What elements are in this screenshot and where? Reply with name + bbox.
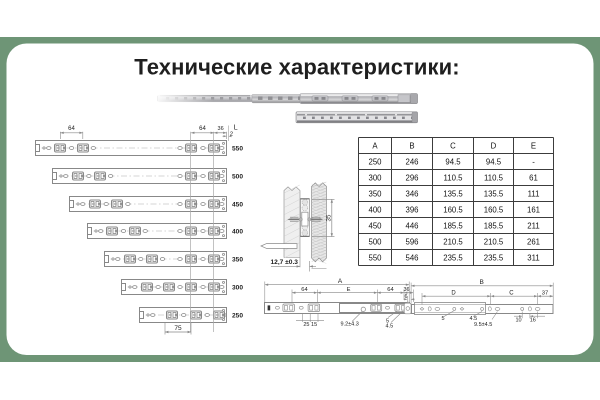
svg-text:16: 16 — [530, 318, 536, 324]
svg-text:261: 261 — [527, 237, 540, 246]
svg-text:396: 396 — [405, 205, 418, 214]
svg-text:110.5: 110.5 — [444, 173, 464, 182]
svg-text:135.5: 135.5 — [443, 189, 463, 198]
svg-text:135.5: 135.5 — [484, 189, 504, 198]
svg-text:111: 111 — [528, 189, 540, 198]
svg-text:596: 596 — [405, 237, 418, 246]
svg-text:61: 61 — [529, 173, 538, 182]
svg-text:Технические характеристики:: Технические характеристики: — [134, 54, 459, 79]
svg-text:35: 35 — [325, 214, 332, 221]
svg-text:400: 400 — [368, 205, 382, 214]
svg-text:64: 64 — [199, 126, 206, 132]
svg-text:36: 36 — [403, 287, 409, 293]
svg-text:500: 500 — [232, 173, 243, 180]
svg-text:110.5: 110.5 — [484, 173, 504, 182]
svg-text:446: 446 — [405, 221, 418, 230]
svg-text:94.5: 94.5 — [486, 157, 502, 166]
svg-text:246: 246 — [405, 157, 418, 166]
svg-text:10: 10 — [515, 318, 521, 324]
svg-text:185.5: 185.5 — [443, 221, 463, 230]
svg-text:185.5: 185.5 — [484, 221, 504, 230]
svg-text:D: D — [451, 291, 456, 297]
svg-text:450: 450 — [368, 221, 382, 230]
svg-text:300: 300 — [368, 173, 382, 182]
svg-text:235.5: 235.5 — [484, 253, 504, 262]
svg-text:500: 500 — [368, 237, 382, 246]
svg-text:296: 296 — [405, 173, 418, 182]
svg-text:5: 5 — [442, 316, 445, 322]
svg-text:75: 75 — [174, 325, 182, 332]
svg-text:6: 6 — [405, 294, 408, 300]
svg-text:4.5: 4.5 — [386, 324, 394, 330]
svg-text:211: 211 — [527, 221, 539, 230]
svg-text:300: 300 — [232, 284, 243, 291]
svg-text:C: C — [509, 291, 514, 297]
svg-text:210.5: 210.5 — [484, 237, 504, 246]
svg-text:550: 550 — [232, 145, 243, 152]
svg-text:9.2±4.3: 9.2±4.3 — [341, 322, 359, 328]
svg-text:546: 546 — [405, 253, 418, 262]
svg-text:B: B — [409, 141, 414, 150]
svg-text:9.5±4.5: 9.5±4.5 — [474, 322, 492, 328]
svg-text:64: 64 — [387, 287, 394, 293]
svg-text:235.5: 235.5 — [443, 253, 463, 262]
svg-text:350: 350 — [232, 256, 243, 263]
svg-text:12,7 ±0.3: 12,7 ±0.3 — [271, 259, 299, 266]
svg-text:250: 250 — [232, 312, 243, 319]
svg-text:A: A — [372, 141, 378, 150]
svg-text:15: 15 — [311, 322, 317, 328]
svg-text:550: 550 — [368, 253, 382, 262]
svg-text:B: B — [480, 279, 484, 286]
svg-text:400: 400 — [232, 228, 243, 235]
svg-text:250: 250 — [368, 157, 382, 166]
svg-text:311: 311 — [527, 253, 539, 262]
svg-text:210.5: 210.5 — [443, 237, 463, 246]
svg-text:64: 64 — [301, 287, 308, 293]
svg-text:346: 346 — [405, 189, 418, 198]
svg-text:-: - — [532, 157, 535, 166]
svg-text:25: 25 — [303, 322, 309, 328]
svg-text:E: E — [531, 141, 536, 150]
svg-text:36: 36 — [218, 126, 224, 132]
svg-text:A: A — [338, 278, 343, 285]
svg-text:161: 161 — [527, 205, 540, 214]
svg-text:37: 37 — [542, 291, 548, 297]
svg-text:E: E — [347, 287, 351, 293]
svg-text:D: D — [491, 141, 497, 150]
svg-text:64: 64 — [68, 126, 75, 132]
svg-text:L: L — [234, 125, 238, 132]
svg-text:160.5: 160.5 — [443, 205, 463, 214]
svg-text:94.5: 94.5 — [445, 157, 461, 166]
svg-text:C: C — [450, 141, 456, 150]
svg-text:450: 450 — [232, 201, 243, 208]
svg-text:350: 350 — [368, 189, 382, 198]
svg-text:160.5: 160.5 — [484, 205, 504, 214]
